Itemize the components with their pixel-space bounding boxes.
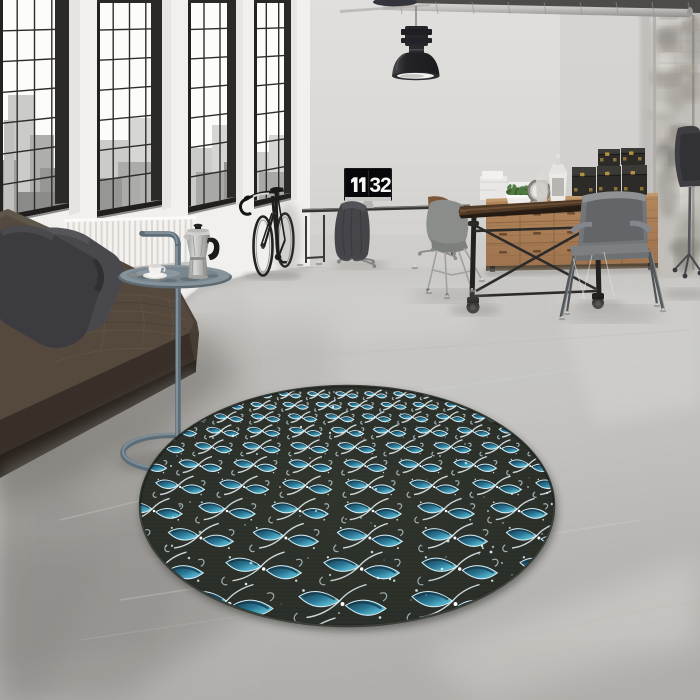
- svg-text:32: 32: [369, 174, 391, 197]
